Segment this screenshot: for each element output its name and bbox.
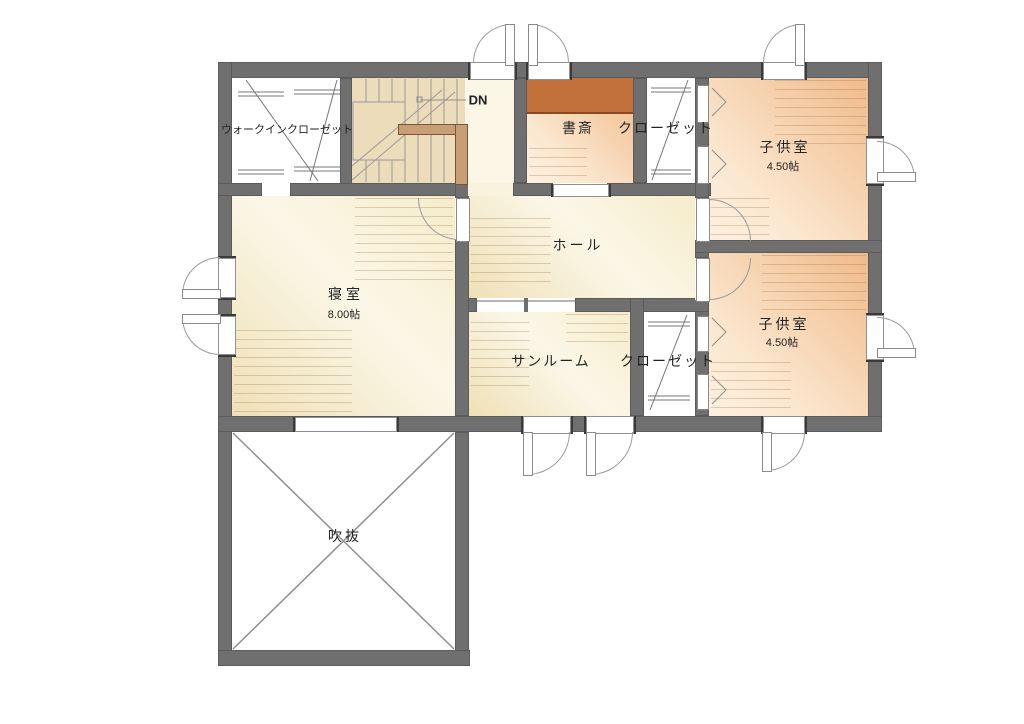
door-leaf — [456, 198, 470, 242]
bifold-door-panel — [697, 316, 709, 352]
room-label-study: 書斎 — [562, 118, 594, 138]
wall-segment — [218, 183, 262, 196]
corridor-opening — [468, 183, 513, 196]
bifold-door-panel — [697, 146, 709, 184]
bifold-door-panel — [697, 374, 709, 410]
wall-segment — [455, 183, 469, 198]
room-label-hall: ホール — [553, 235, 604, 255]
wall-segment — [218, 62, 232, 666]
door-leaf — [696, 198, 710, 242]
doorway-opening — [262, 183, 290, 196]
door-leaf — [696, 258, 710, 302]
window-leaf — [528, 24, 538, 66]
wall-segment — [340, 78, 352, 196]
room-label-closet-upper: クローゼット — [618, 118, 714, 138]
room-label-bedroom: 寝室 — [328, 284, 364, 304]
window-leaf — [762, 432, 772, 472]
window-leaf — [795, 24, 805, 66]
door-leaf — [586, 432, 596, 476]
mullion-post — [524, 298, 528, 312]
stair-handrail — [398, 124, 462, 135]
room-label-kids-upper: 子供室 — [760, 137, 811, 157]
room-label-sunroom: サンルーム — [511, 351, 591, 371]
door-leaf — [523, 432, 533, 476]
wall-segment — [218, 650, 470, 666]
wall-segment — [514, 78, 527, 183]
wall-segment — [455, 432, 469, 666]
window-leaf — [505, 24, 515, 66]
window-leaf — [877, 172, 916, 182]
room-label-closet-lower: クローゼット — [620, 351, 716, 371]
room-label-kids-lower: 子供室 — [759, 314, 810, 334]
room-size-bedroom: 8.00帖 — [328, 306, 360, 322]
dn-leader-line — [417, 97, 466, 102]
wall-segment — [513, 183, 553, 196]
wall-segment — [290, 183, 468, 196]
interior-window-void — [295, 417, 397, 432]
room-label-void: 吹抜 — [328, 526, 362, 546]
window-leaf — [877, 348, 916, 358]
floor-plan: ウォークインクローゼット DN 書斎 クローゼット 子供室 4.50帖 ホール … — [0, 0, 1024, 724]
window-leaf — [182, 314, 221, 324]
wall-segment — [695, 240, 882, 253]
window-leaf — [182, 289, 221, 299]
room-size-kids-upper: 4.50帖 — [767, 158, 799, 174]
wall-segment — [455, 240, 469, 416]
room-label-walk-in-closet: ウォークインクローゼット — [221, 121, 353, 137]
interior-window-study — [553, 184, 609, 197]
stair-handrail — [455, 124, 468, 185]
room-size-kids-lower: 4.50帖 — [766, 334, 798, 350]
stairs-down-label: DN — [469, 93, 488, 108]
